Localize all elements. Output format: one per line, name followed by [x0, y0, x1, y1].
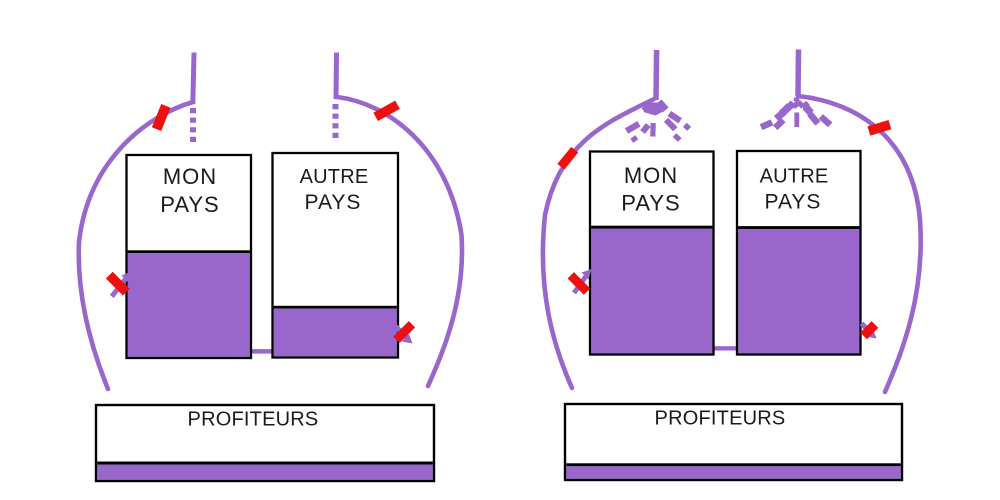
- svg-text:PROFITEURS: PROFITEURS: [188, 409, 319, 431]
- svg-text:PAYS: PAYS: [621, 191, 680, 216]
- svg-text:AUTRE: AUTRE: [300, 166, 369, 188]
- svg-text:MON: MON: [624, 163, 678, 188]
- svg-text:MON: MON: [163, 164, 217, 189]
- svg-text:PAYS: PAYS: [305, 191, 362, 214]
- svg-text:AUTRE: AUTRE: [760, 166, 829, 188]
- svg-text:PAYS: PAYS: [765, 191, 822, 214]
- svg-text:PAYS: PAYS: [160, 192, 219, 217]
- svg-text:PROFITEURS: PROFITEURS: [655, 408, 786, 430]
